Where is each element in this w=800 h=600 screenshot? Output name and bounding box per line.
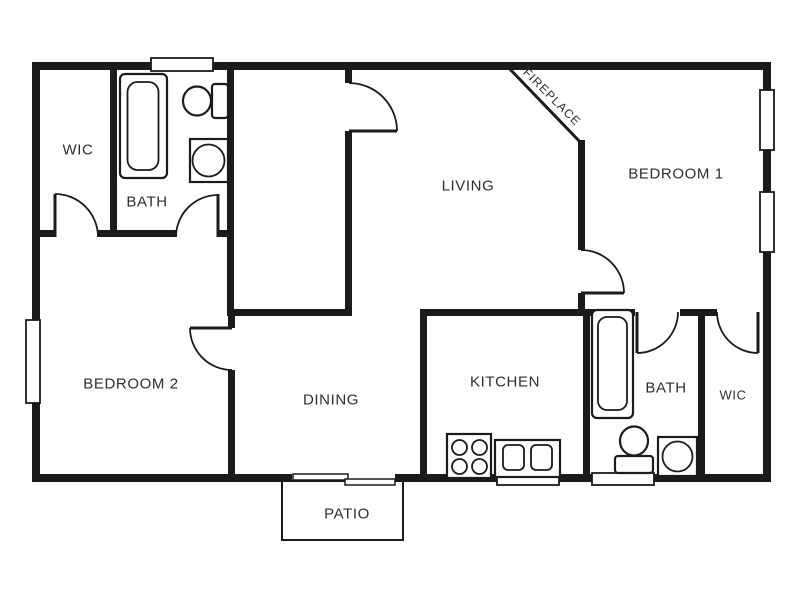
stove-burner-2: [472, 440, 487, 455]
wall-exterior-top: [32, 62, 771, 70]
wall-living-bedroom1-upper: [578, 140, 585, 250]
wall-block1-bottom-a: [40, 230, 55, 237]
room-label-dining: DINING: [303, 392, 359, 409]
room-label-kitchen: KITCHEN: [470, 374, 540, 391]
wall-bath-wic-divider-lower: [698, 316, 705, 482]
room-label-wic-lower: WIC: [719, 388, 746, 403]
wall-wic-bath-divider-upper: [110, 70, 117, 237]
toilet-upper-tank: [212, 84, 228, 118]
floorplan-page: { "floorplan": { "type": "apartment-floo…: [0, 0, 800, 600]
room-label-patio: PATIO: [324, 506, 370, 523]
bathtub-lower: [592, 310, 633, 418]
wall-bath-wic-top: [680, 309, 717, 316]
room-label-bedroom2: BEDROOM 2: [83, 376, 178, 393]
kitchen-sink-bowl-left: [503, 445, 524, 470]
stove-burner-1: [452, 440, 467, 455]
room-label-living: LIVING: [442, 178, 495, 195]
vanity-sink-upper: [190, 139, 228, 182]
door-arc-closet: [349, 83, 397, 131]
room-label-bedroom1: BEDROOM 1: [628, 166, 723, 183]
vanity-upper-basin: [193, 145, 225, 177]
toilet-lower-tank: [615, 456, 653, 473]
stove-burner-3: [452, 459, 467, 474]
wall-bedroom2-dining-stub: [228, 316, 235, 328]
bathtub-lower-inner: [598, 317, 627, 410]
kitchen-sink-bowl-right: [531, 445, 552, 470]
window-bedroom1-b: [760, 192, 774, 252]
sliding-door-panel-left: [293, 474, 348, 480]
wall-closet-bottom: [227, 309, 352, 316]
vanity-lower-basin: [663, 442, 693, 472]
wall-living-left-lower: [345, 131, 352, 316]
bathtub-upper: [120, 74, 167, 178]
window-bedroom1-a: [760, 90, 774, 150]
vanity-sink-lower: [658, 437, 697, 476]
toilet-upper: [183, 84, 228, 118]
wall-living-left-upper: [345, 62, 352, 83]
sliding-door-panel-right: [345, 479, 395, 485]
kitchen-sink: [495, 440, 560, 477]
wall-block1-bottom-b: [97, 230, 176, 237]
room-label-bath-upper: BATH: [126, 194, 167, 211]
door-arc-bath-lower: [637, 312, 678, 353]
stove: [447, 434, 491, 478]
toilet-lower-bowl: [620, 427, 648, 456]
door-arc-bedroom2: [190, 328, 232, 370]
window-bedroom2: [26, 320, 40, 403]
door-arc-wic-upper: [55, 194, 98, 237]
window-bath-lower: [592, 473, 654, 485]
door-arc-wic-lower: [717, 312, 758, 353]
toilet-upper-bowl: [183, 87, 211, 116]
floorplan-drawing: [0, 0, 800, 600]
fixtures: [120, 74, 697, 478]
stove-burner-4: [472, 459, 487, 474]
wall-living-bedroom1-stub: [578, 293, 585, 316]
room-label-bath-lower: BATH: [645, 380, 686, 397]
wall-kitchen-bath-divider: [583, 316, 590, 482]
toilet-lower: [615, 427, 653, 474]
door-arc-bath-upper: [176, 195, 218, 237]
window-bath-upper: [151, 58, 213, 71]
room-label-wic-upper: WIC: [63, 142, 94, 159]
wall-exterior-left: [32, 62, 40, 482]
door-arc-bedroom1: [581, 250, 624, 293]
bathtub-upper-inner: [128, 82, 159, 170]
wall-kitchen-left: [420, 309, 427, 482]
fireplace-diagonal-wall: [504, 63, 584, 146]
wall-bedroom2-dining-main: [228, 370, 235, 482]
